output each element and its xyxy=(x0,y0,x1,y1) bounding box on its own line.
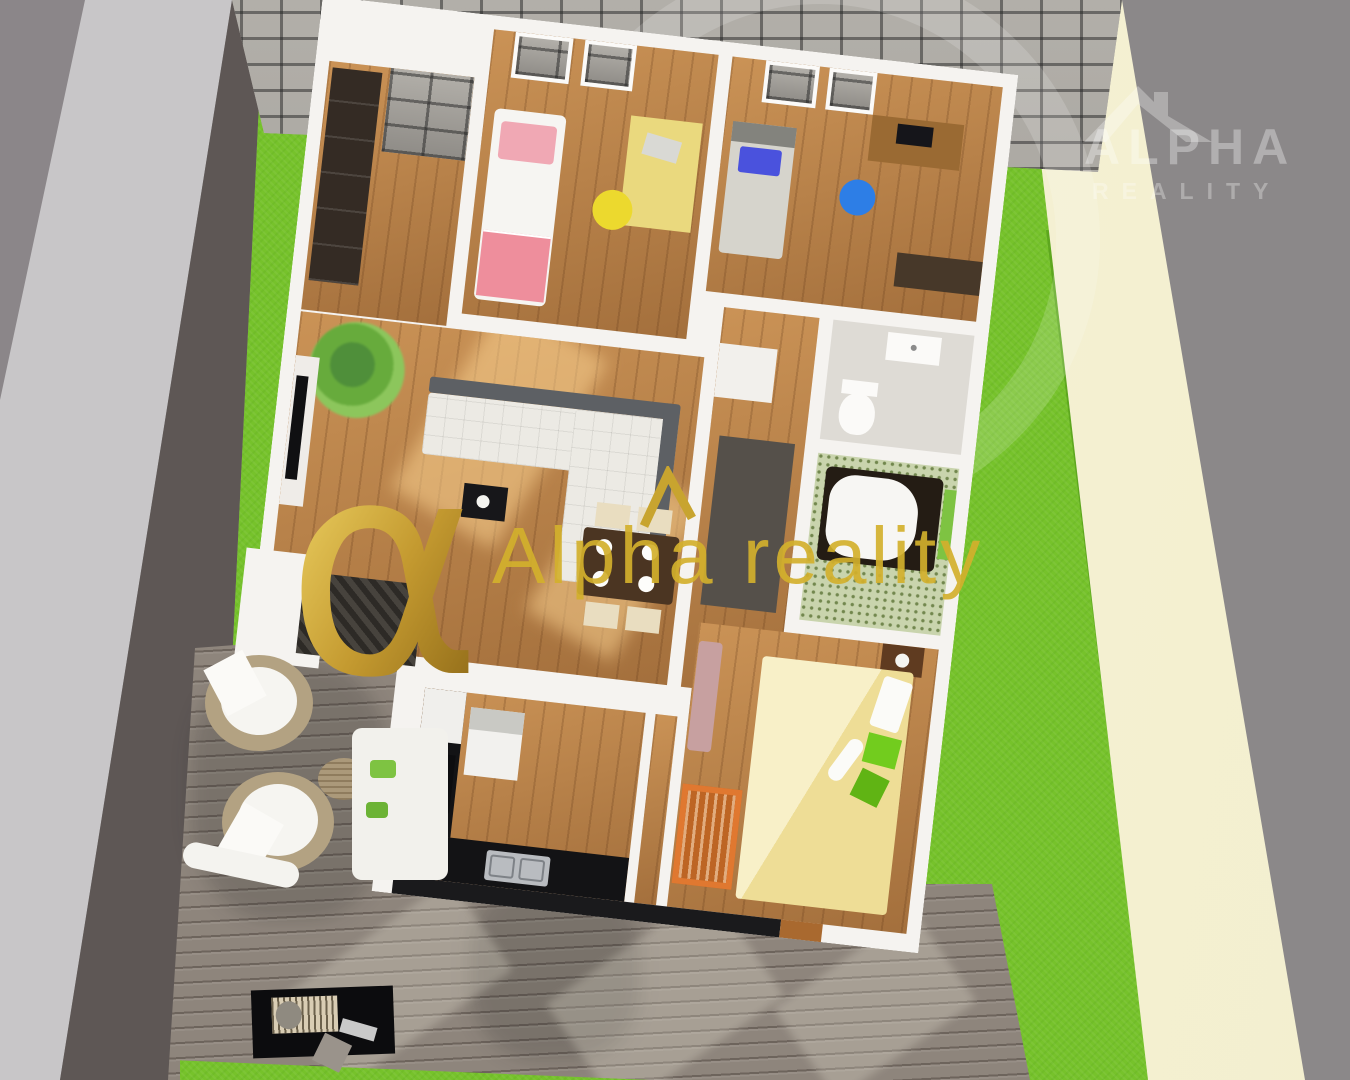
laptop xyxy=(641,132,682,163)
wardrobe xyxy=(309,67,383,285)
desk-with-monitor xyxy=(868,115,965,171)
headboard xyxy=(731,121,797,148)
monitor xyxy=(896,124,934,148)
window xyxy=(580,40,637,92)
baby-crib xyxy=(672,784,743,890)
center-watermark: α Alpha reality xyxy=(320,482,1080,702)
blanket-pink xyxy=(476,229,551,302)
brand-name: ALPHA xyxy=(1084,118,1296,176)
entry-hall xyxy=(301,61,474,326)
toilet xyxy=(837,391,878,437)
pillow-green xyxy=(862,732,902,770)
pillow-pink xyxy=(497,121,557,165)
pillow-green xyxy=(850,768,890,808)
window xyxy=(511,32,574,84)
open-door-paving xyxy=(382,68,475,161)
office-chair-blue xyxy=(837,178,877,218)
hall-cabinet xyxy=(714,343,778,403)
sink-basin xyxy=(488,854,515,879)
washbasin xyxy=(885,332,942,366)
outdoor-sofa-white xyxy=(352,728,448,880)
corner-watermark: ALPHA REALITY xyxy=(1080,80,1340,210)
pillow-blue xyxy=(738,146,783,177)
bedroom-2 xyxy=(706,57,1003,322)
brand-text: Alpha reality xyxy=(492,510,984,602)
bedroom-1 xyxy=(462,29,719,339)
window xyxy=(825,68,877,115)
single-bed-blue-pillow xyxy=(718,121,797,259)
double-sink xyxy=(484,850,551,887)
pillow-green xyxy=(366,802,388,818)
single-bed-pink xyxy=(473,108,566,307)
floorplan-render: ALPHA REALITY α Alpha reality xyxy=(0,0,1350,1080)
faucet xyxy=(910,345,917,352)
sideboard xyxy=(894,252,983,296)
alpha-symbol: α xyxy=(285,420,483,720)
brand-subtitle: REALITY xyxy=(1092,178,1281,205)
barbecue-grill xyxy=(251,986,395,1059)
window xyxy=(762,60,820,108)
wc xyxy=(820,320,975,455)
pillow-green xyxy=(370,760,396,778)
grill-tray xyxy=(339,1018,377,1041)
sink-basin xyxy=(518,858,545,883)
